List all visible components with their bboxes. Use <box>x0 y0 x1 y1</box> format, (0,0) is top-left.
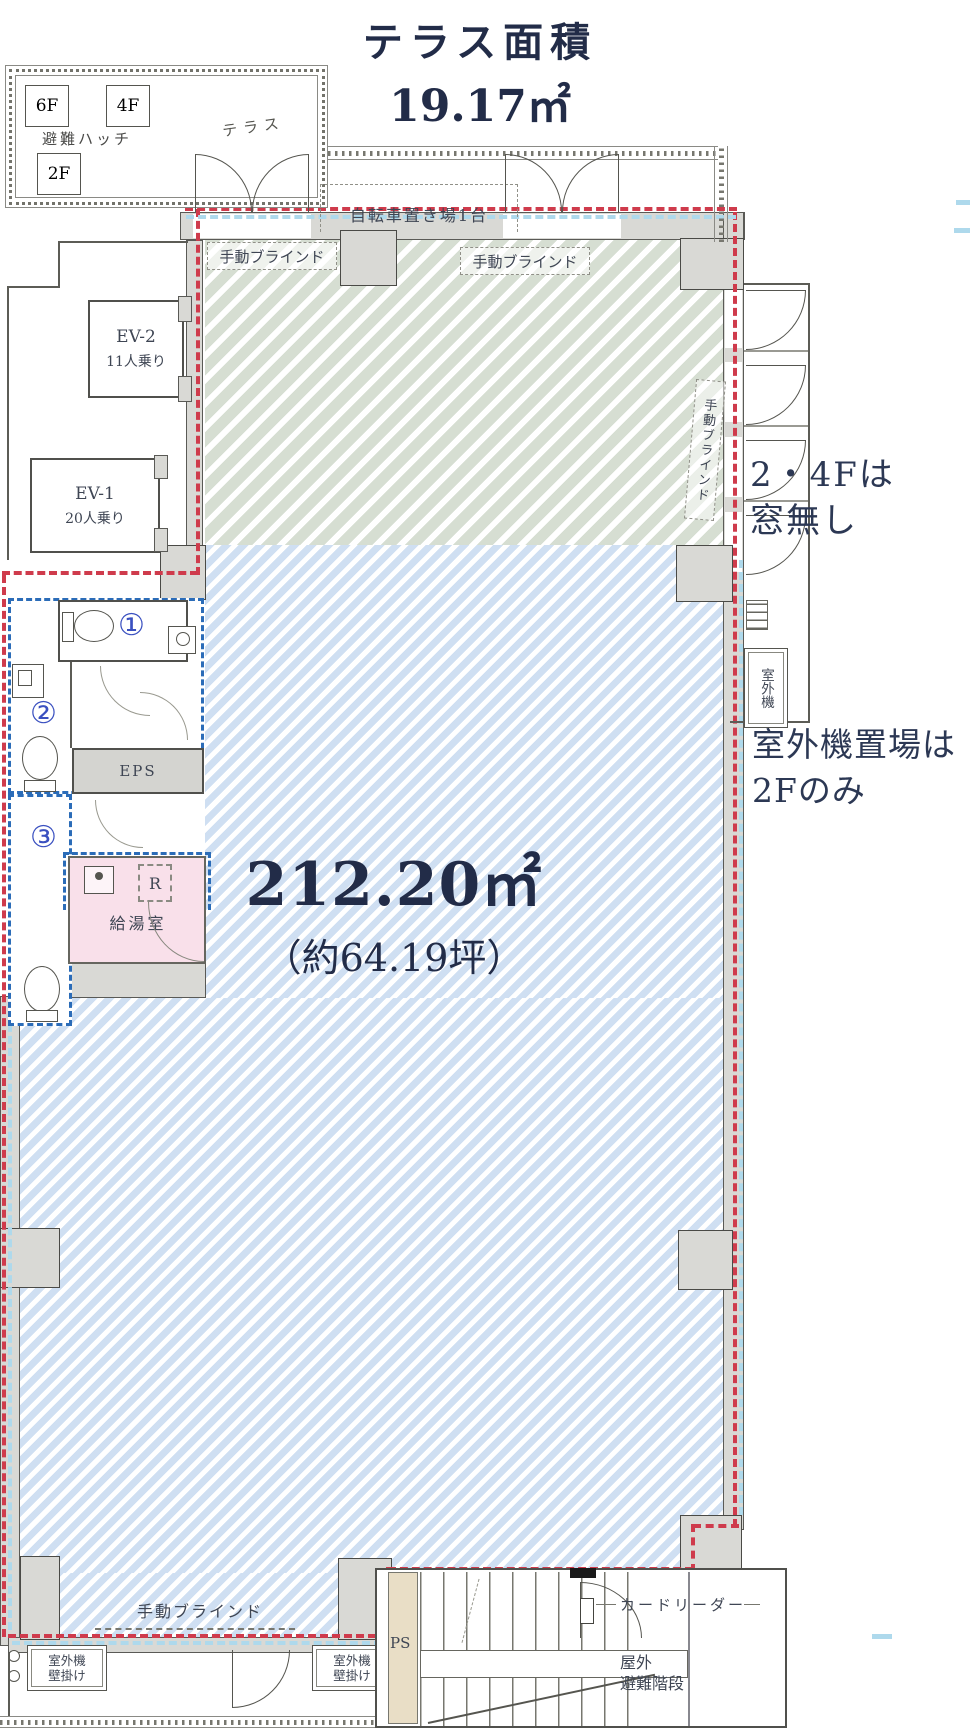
title-line1: テラス面積 <box>310 10 650 68</box>
wc2-number: ② <box>30 696 57 731</box>
outdoor-stairs-line2: 避難階段 <box>620 1673 684 1694</box>
manual-blind-label: 手動ブラインド <box>207 242 337 270</box>
ps-label: PS <box>390 1634 410 1652</box>
ev2-capacity: 11人乗り <box>106 351 166 371</box>
elevator-jamb <box>178 376 192 402</box>
eps-label: EPS <box>119 762 156 780</box>
door-arc <box>562 154 619 212</box>
bicycle-parking-box: 自転車置き場1台 <box>320 184 518 232</box>
toilet-tank <box>26 1010 58 1022</box>
leader-line <box>744 1604 760 1605</box>
door-arc <box>746 290 806 350</box>
fridge-box: R <box>138 864 172 902</box>
unit-wall-line1: 室外機 <box>333 1653 371 1668</box>
ev1-name: EV-1 <box>75 484 115 504</box>
outdoor-unit-wall-box: 室外機 壁掛け <box>27 1645 107 1691</box>
unit-wall-line2: 壁掛け <box>48 1668 86 1683</box>
balcony-edge <box>8 1653 10 1716</box>
column <box>678 1230 733 1290</box>
door-hinge <box>570 1568 596 1578</box>
page-title: テラス面積 19.17㎡ <box>310 10 650 134</box>
lease-boundary-lobby-bottom <box>2 571 198 575</box>
hatch-box-2f-label: 2F <box>48 164 71 184</box>
fridge-label: R <box>149 874 161 893</box>
toilet-tank <box>62 612 74 642</box>
area-sqm: 212.20㎡ <box>229 836 559 923</box>
outdoor-unit-label: 室外機 <box>748 652 784 724</box>
manual-blind-text: 手動ブラインド <box>691 397 719 503</box>
door-sill <box>744 350 808 352</box>
wc-partition <box>70 662 72 748</box>
wash-sink-basin <box>18 670 32 686</box>
window-tick <box>872 1634 892 1639</box>
toilet-bowl <box>22 736 58 780</box>
louver-icon <box>746 600 768 630</box>
title-line2: 19.17㎡ <box>310 70 650 134</box>
elevator-jamb <box>154 455 168 479</box>
lobby-outline <box>7 288 9 560</box>
lease-boundary-left <box>2 575 6 1637</box>
manual-blind-label: 手動ブラインド <box>460 247 590 275</box>
kitchen-sink <box>84 866 114 894</box>
card-reader-label: カードリーダー <box>620 1594 746 1615</box>
bicycle-parking-label: 自転車置き場1台 <box>350 202 488 226</box>
outdoor-unit-wall-label: 室外機 壁掛け <box>31 1649 103 1687</box>
hatch-box-6f-label: 6F <box>36 96 59 116</box>
window-strip-right <box>739 560 743 1515</box>
card-reader-device <box>580 1598 594 1624</box>
manual-blind-text: 手動ブラインド <box>472 251 577 272</box>
manual-blind-text: 手動ブラインド <box>137 1598 263 1622</box>
blue-hatch-area-lower <box>20 998 725 1573</box>
lobby-outline <box>58 243 60 288</box>
hand-sink-basin <box>176 632 190 646</box>
window-strip-left <box>8 1000 12 1630</box>
corridor-outline <box>744 283 808 285</box>
ev1-capacity: 20人乗り <box>65 508 125 528</box>
no-window-line1: 2・4Fは <box>750 452 895 498</box>
outdoor-note-line1: 室外機置場は <box>752 722 956 768</box>
area-tsubo: （約64.19坪） <box>229 927 559 982</box>
unit-wall-line2: 壁掛け <box>333 1668 371 1683</box>
lease-boundary-right <box>733 212 737 1527</box>
eps-room: EPS <box>72 748 204 794</box>
elevator-jamb <box>154 528 168 552</box>
wc3-number: ③ <box>30 820 57 855</box>
lobby-outline <box>58 241 188 243</box>
door-arc <box>505 154 562 212</box>
manual-blind-text: 手動ブラインド <box>219 246 324 267</box>
hatch-box-4f-label: 4F <box>117 96 140 116</box>
terrace-railing-corner <box>714 146 728 242</box>
lease-boundary-jog <box>693 1524 739 1528</box>
outdoor-unit-box: 室外機 <box>744 648 788 728</box>
leader-line <box>596 1604 616 1605</box>
door-arc <box>232 1650 290 1708</box>
column <box>340 230 397 286</box>
elevator-ev2: EV-2 11人乗り <box>88 300 184 398</box>
door-arc <box>95 800 143 848</box>
ev2-name: EV-2 <box>116 327 156 347</box>
green-hatch-area <box>205 240 725 545</box>
kitchen-lower-wall <box>60 962 206 998</box>
elevator-ev1: EV-1 20人乗り <box>30 458 160 553</box>
unit-wall-line1: 室外機 <box>48 1653 86 1668</box>
floor-plan: 6F 4F 2F 避難ハッチ テラス 自転車置き場1台 手動ブラインド 手動ブラ… <box>0 0 972 1728</box>
lease-boundary-jog <box>691 1524 695 1572</box>
column <box>676 545 733 602</box>
evacuation-hatch-label: 避難ハッチ <box>42 128 132 149</box>
outdoor-unit-text: 室外機 <box>756 668 776 709</box>
no-window-line2: 窓無し <box>750 498 895 544</box>
outdoor-unit-note: 室外機置場は 2Fのみ <box>752 722 956 814</box>
blind-dash-line <box>95 1628 295 1630</box>
hatch-box-2f: 2F <box>37 153 81 195</box>
balcony-railing <box>0 1716 392 1728</box>
wc1-number: ① <box>118 608 145 643</box>
elevator-jamb <box>178 296 192 322</box>
column <box>20 1556 60 1640</box>
lease-boundary-lobby <box>196 209 200 575</box>
toilet-bowl <box>74 610 114 642</box>
door-arc <box>746 365 806 425</box>
lease-boundary-bottom-left <box>8 1634 388 1638</box>
outdoor-note-line2: 2Fのみ <box>752 768 956 814</box>
kitchen-faucet <box>95 872 103 880</box>
toilet-bowl <box>24 966 60 1012</box>
outdoor-stairs-line1: 屋外 <box>620 1652 684 1673</box>
outdoor-stairs-label: 屋外 避難階段 <box>620 1652 684 1694</box>
window-tick <box>956 200 970 205</box>
no-window-note: 2・4Fは 窓無し <box>750 452 895 544</box>
main-area-size: 212.20㎡ （約64.19坪） <box>229 836 559 982</box>
stair-treads-lower <box>420 1678 645 1726</box>
hatch-box-6f: 6F <box>25 85 69 127</box>
door-sill <box>744 425 808 427</box>
toilet-tank <box>24 780 56 792</box>
window-tick <box>954 228 970 233</box>
manual-blind-label: 手動ブラインド <box>115 1598 285 1622</box>
hatch-box-4f: 4F <box>106 85 150 127</box>
lobby-outline <box>7 286 60 288</box>
